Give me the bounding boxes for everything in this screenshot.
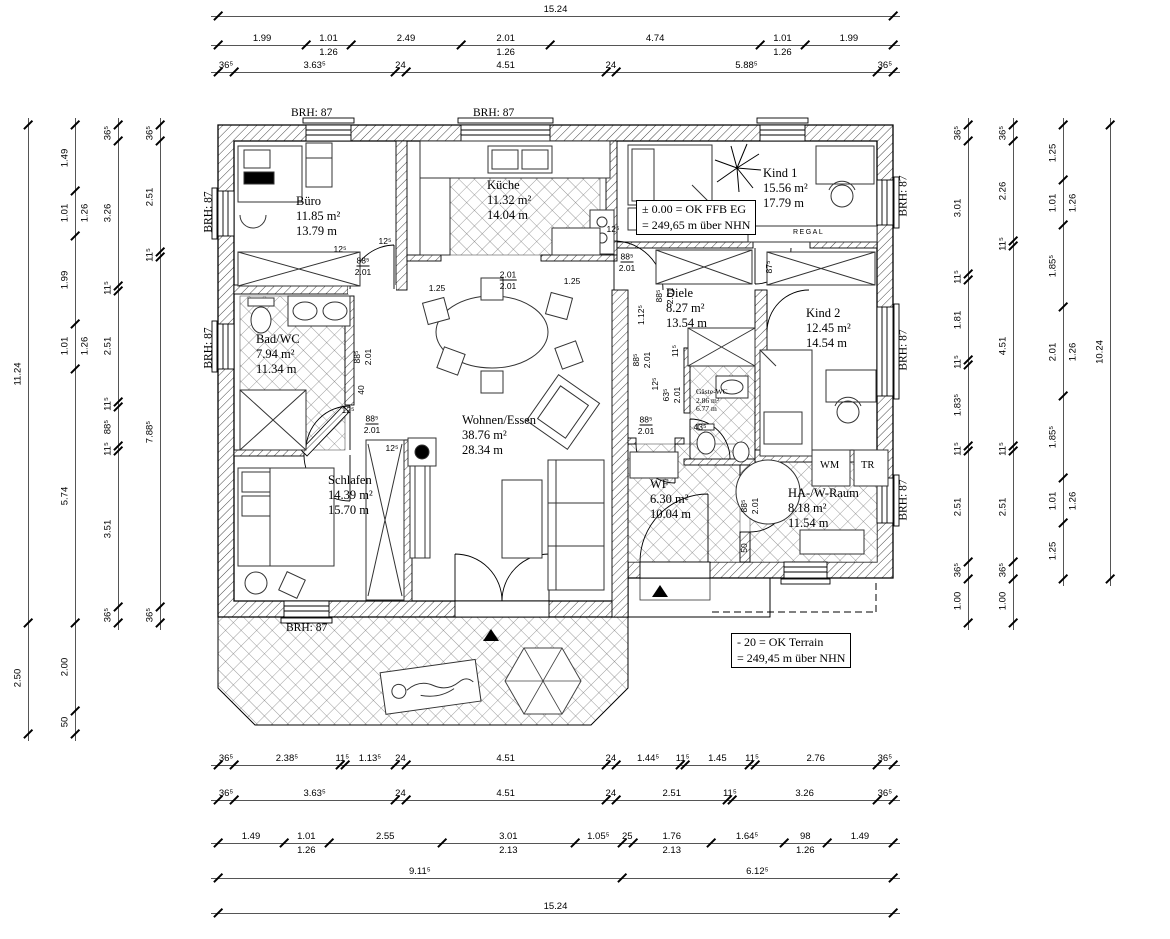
inner-dim: 88⁵ xyxy=(366,414,379,425)
entrance-porch xyxy=(628,578,876,617)
inner-dim: 11⁵ xyxy=(670,345,680,357)
inner-dim: 12⁵ xyxy=(386,443,399,453)
room-label-bad: Bad/WC7.94 m²11.34 m xyxy=(256,332,300,376)
room-label-kind1: Kind 115.56 m²17.79 m xyxy=(763,166,808,210)
floor-plan-drawing xyxy=(0,0,1170,939)
regal-label: REGAL xyxy=(793,229,824,236)
tr-label: TR xyxy=(861,460,874,471)
plant-icon xyxy=(715,144,761,192)
inner-dim: 88⁵ xyxy=(640,415,653,426)
inner-dim: 2.01 xyxy=(672,387,682,404)
inner-dim: 2.01 xyxy=(638,426,655,436)
inner-dim: 43⁵ xyxy=(694,422,707,432)
floor-plan-page: Büro11.85 m²13.79 m Küche11.32 m²14.04 m… xyxy=(0,0,1170,939)
inner-dim: 1.25 xyxy=(429,283,446,293)
brh-label-top-2: BRH: 87 xyxy=(473,107,514,119)
inner-dim: 88⁵ xyxy=(739,500,749,513)
inner-dim: 2.01 xyxy=(642,352,652,369)
room-label-wohnen-essen: Wohnen/Essen38.76 m²28.34 m xyxy=(462,413,536,457)
inner-dim: 88⁵ xyxy=(654,290,664,303)
inner-dim: 12⁵ xyxy=(334,244,347,254)
inner-dim: 12⁵ xyxy=(607,224,620,234)
inner-dim: 1.12⁵ xyxy=(636,305,646,325)
inner-dim: 63⁵ xyxy=(661,389,671,402)
brh-label-right-2: BRH: 87 xyxy=(898,329,910,370)
inner-dim: 88⁵ xyxy=(357,256,370,267)
inner-dim: 12⁵ xyxy=(379,236,392,246)
room-label-kueche: Küche11.32 m²14.04 m xyxy=(487,178,531,222)
inner-dim: 1.25 xyxy=(564,276,581,286)
brh-label-right-3: BRH: 87 xyxy=(898,479,910,520)
inner-dim: 2.01 xyxy=(665,288,675,305)
room-label-kind2: Kind 212.45 m²14.54 m xyxy=(806,306,851,350)
inner-dim: 88⁵ xyxy=(631,354,641,367)
inner-dim: 40 xyxy=(356,385,366,394)
inner-dim: 2.01 xyxy=(750,498,760,515)
brh-label-left-1: BRH: 87 xyxy=(203,191,215,232)
brh-label-left-2: BRH: 87 xyxy=(203,327,215,368)
inner-dim: 87⁵ xyxy=(764,261,774,274)
brh-label-bottom: BRH: 87 xyxy=(286,622,327,634)
room-label-gaeste-wc: Gäste-WC2.86 m²6.77 m xyxy=(696,388,728,414)
inner-dim: 2.01 xyxy=(363,349,373,366)
wm-label: WM xyxy=(820,460,839,471)
elevation-note-terrain: - 20 = OK Terrain= 249,45 m über NHN xyxy=(731,633,851,668)
inner-dim: 12⁵ xyxy=(342,405,355,415)
inner-dim: 2.01 xyxy=(619,263,636,273)
brh-label-top-1: BRH: 87 xyxy=(291,107,332,119)
inner-dim: 12⁵ xyxy=(650,378,660,391)
inner-dim: 50 xyxy=(739,543,749,552)
inner-dim: 88⁵ xyxy=(621,252,634,263)
inner-dim: 2.01 xyxy=(500,270,517,281)
inner-dim: 2.01 xyxy=(355,267,372,277)
inner-dim: 2.01 xyxy=(500,281,517,291)
room-label-schlafen: Schlafen14.39 m²15.70 m xyxy=(328,473,373,517)
elevation-note-ffb: ± 0.00 = OK FFB EG= 249,65 m über NHN xyxy=(636,200,756,235)
brh-label-right-1: BRH: 87 xyxy=(898,175,910,216)
inner-dim: 88⁵ xyxy=(352,351,362,364)
room-label-ha-w-raum: HA-/W-Raum8.18 m²11.54 m xyxy=(788,486,859,530)
terrace xyxy=(218,617,628,725)
inner-dim: 2.01 xyxy=(364,425,381,435)
room-label-buero: Büro11.85 m²13.79 m xyxy=(296,194,340,238)
room-label-wf: WF6.30 m²10.04 m xyxy=(650,477,691,521)
